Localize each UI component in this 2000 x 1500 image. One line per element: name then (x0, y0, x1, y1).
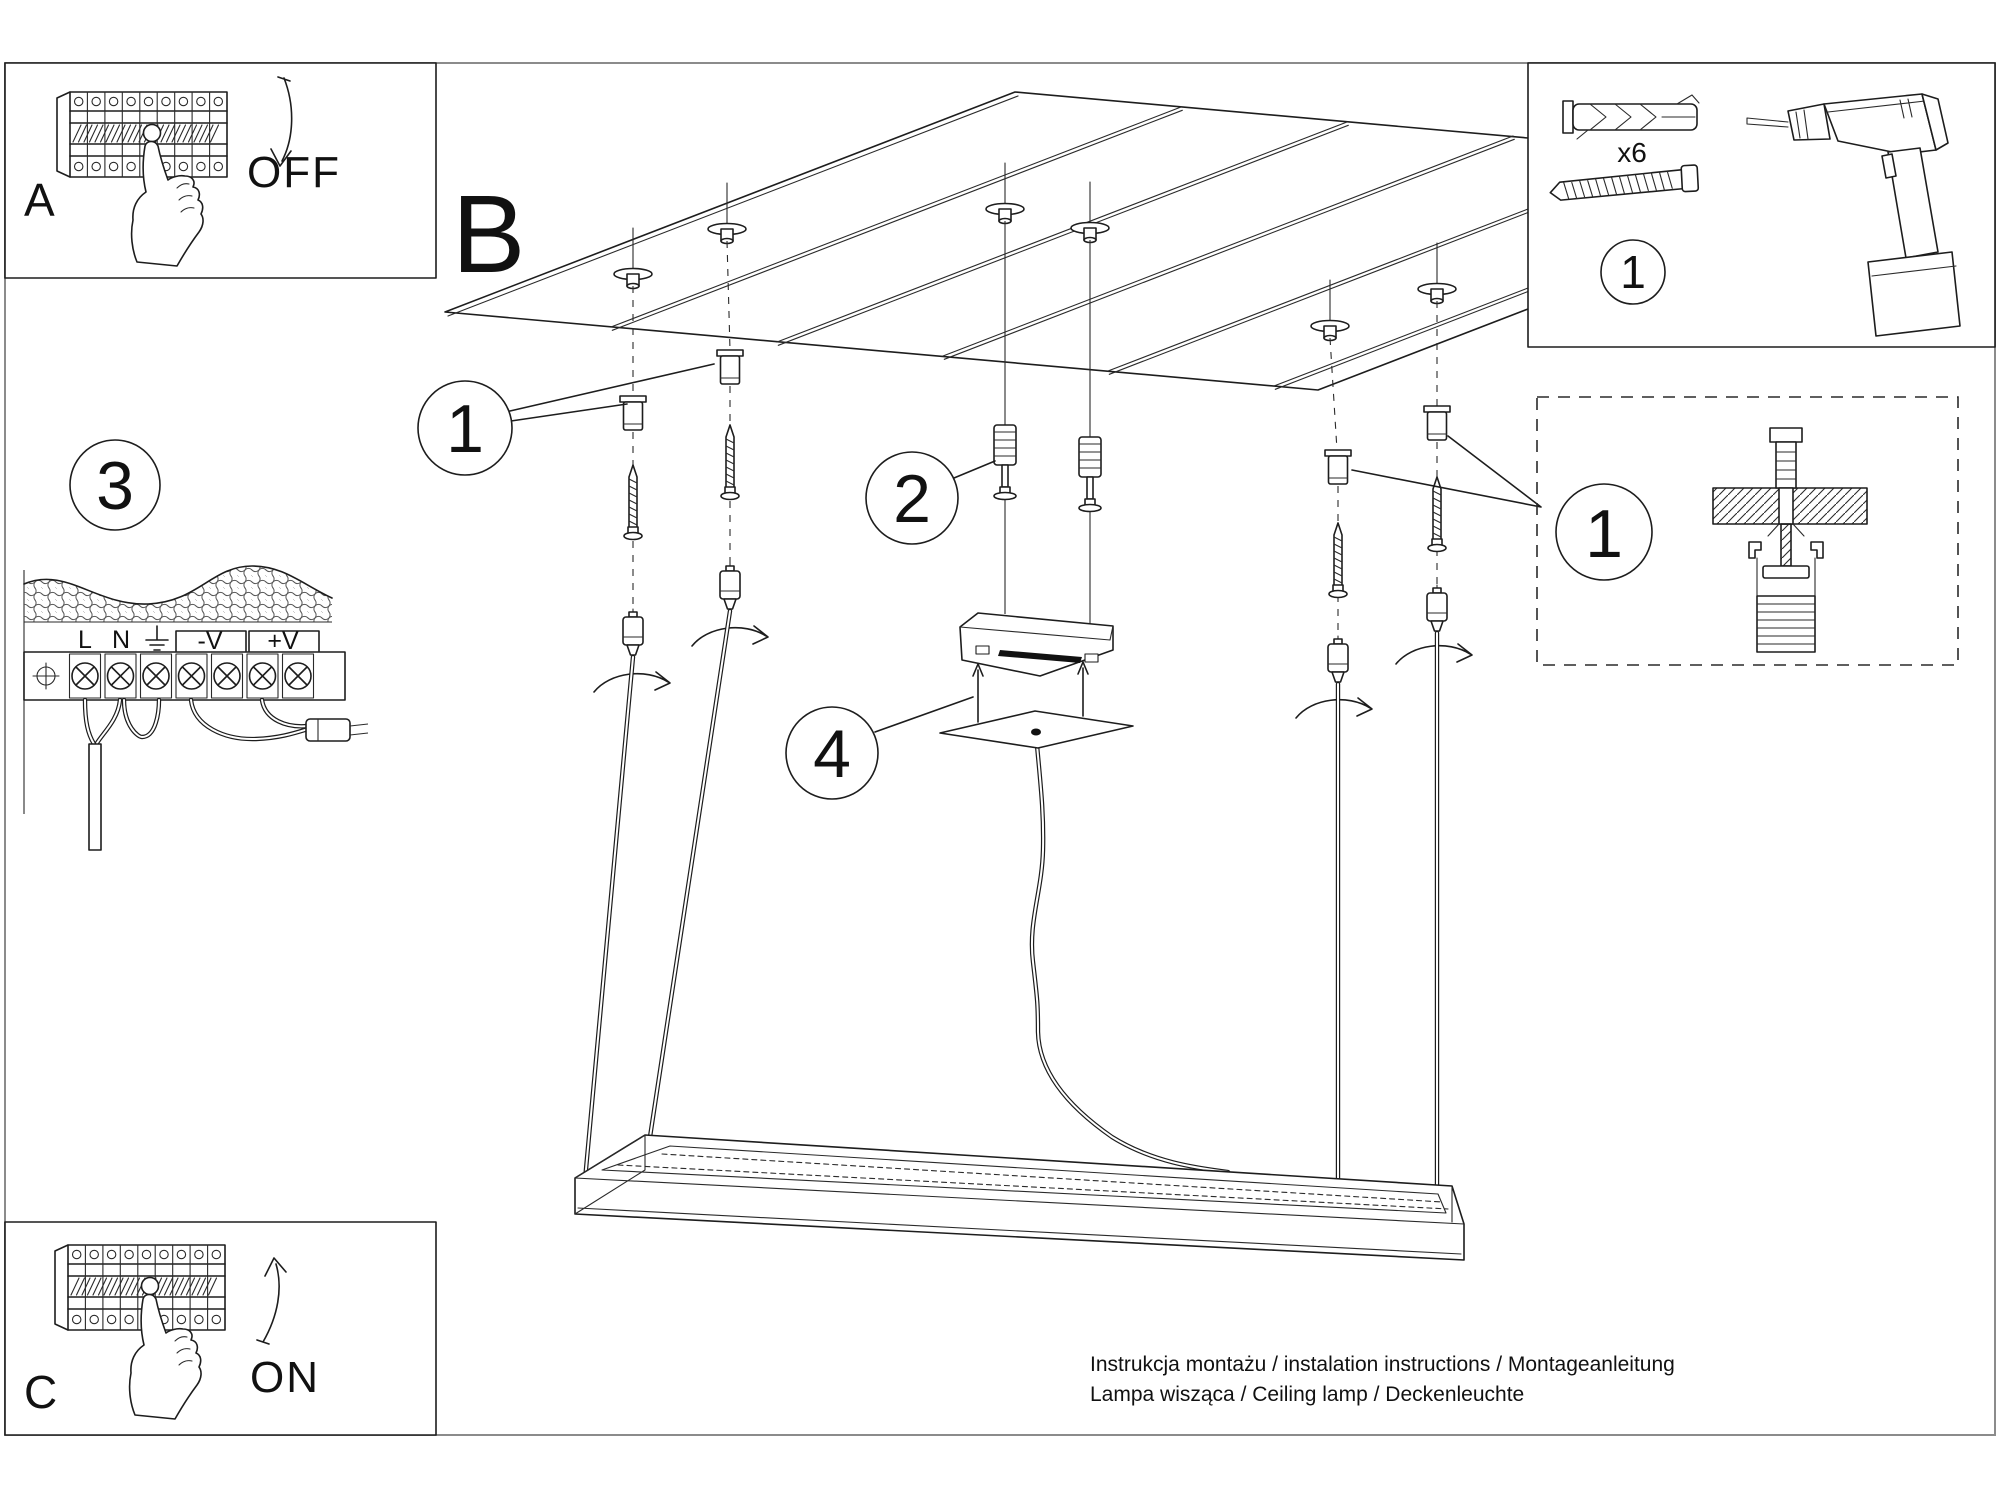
ceiling-screw-icons (614, 163, 1456, 341)
callout-4: 4 (786, 697, 973, 799)
step-number: 1 (1585, 496, 1623, 572)
terminal-label-plusv: +V (267, 627, 299, 655)
cable-hole (1031, 729, 1041, 736)
callout-2: 2 (866, 452, 995, 544)
step-number: 3 (96, 448, 134, 524)
step-number: 1 (1620, 246, 1646, 298)
parts-box: x6 1 (1528, 63, 1995, 347)
callout-3: 3 (70, 440, 160, 530)
wire-connector (306, 719, 350, 741)
lamp-frame (575, 1135, 1464, 1260)
terminal-strip (24, 652, 345, 700)
step-number: 1 (446, 391, 484, 467)
instruction-sheet: B 1 2 4 x6 1 (0, 0, 2000, 1500)
section-b-label: B (452, 173, 525, 296)
insulation-band (24, 566, 332, 622)
panel-c-letter: C (24, 1366, 57, 1418)
terminal-label-n: N (112, 626, 130, 654)
suspension-wires (585, 611, 1437, 1217)
terminal-label-minusv: -V (198, 627, 223, 655)
suspension-guides (633, 241, 1437, 636)
panel-a: OFF A (5, 63, 436, 278)
panel-c: ON C (5, 1222, 436, 1435)
callout-1-detail: 1 (1556, 484, 1652, 580)
wiring-diagram: L N -V +V (24, 566, 368, 850)
callout-1-parts: 1 (1601, 240, 1665, 304)
wiring-wires (85, 700, 368, 850)
terminal-label-l: L (78, 626, 92, 654)
screw-icons (624, 425, 1446, 598)
footer-line1: Instrukcja montażu / instalation instruc… (1090, 1353, 1675, 1376)
cable-sleeve (89, 744, 101, 850)
callout-1b: 1 (418, 364, 714, 475)
footer-caption: Instrukcja montażu / instalation instruc… (1090, 1353, 1675, 1406)
driver-suspension-lines (1005, 221, 1090, 624)
footer-line2: Lampa wisząca / Ceiling lamp / Deckenleu… (1090, 1383, 1524, 1406)
panel-a-letter: A (24, 174, 55, 226)
power-off-label: OFF (247, 148, 341, 197)
ceiling-planks (611, 107, 1528, 389)
power-cable (1032, 734, 1228, 1172)
canopy-plate (940, 711, 1133, 748)
ceiling-panel (445, 92, 1528, 390)
step-number: 4 (813, 716, 851, 792)
plug-quantity: x6 (1617, 137, 1647, 168)
earth-ground-icon (146, 626, 168, 650)
power-on-label: ON (250, 1353, 320, 1402)
step-number: 2 (893, 461, 931, 537)
anchor-cross-section (1713, 428, 1867, 652)
expansion-anchor-icons (994, 425, 1101, 512)
